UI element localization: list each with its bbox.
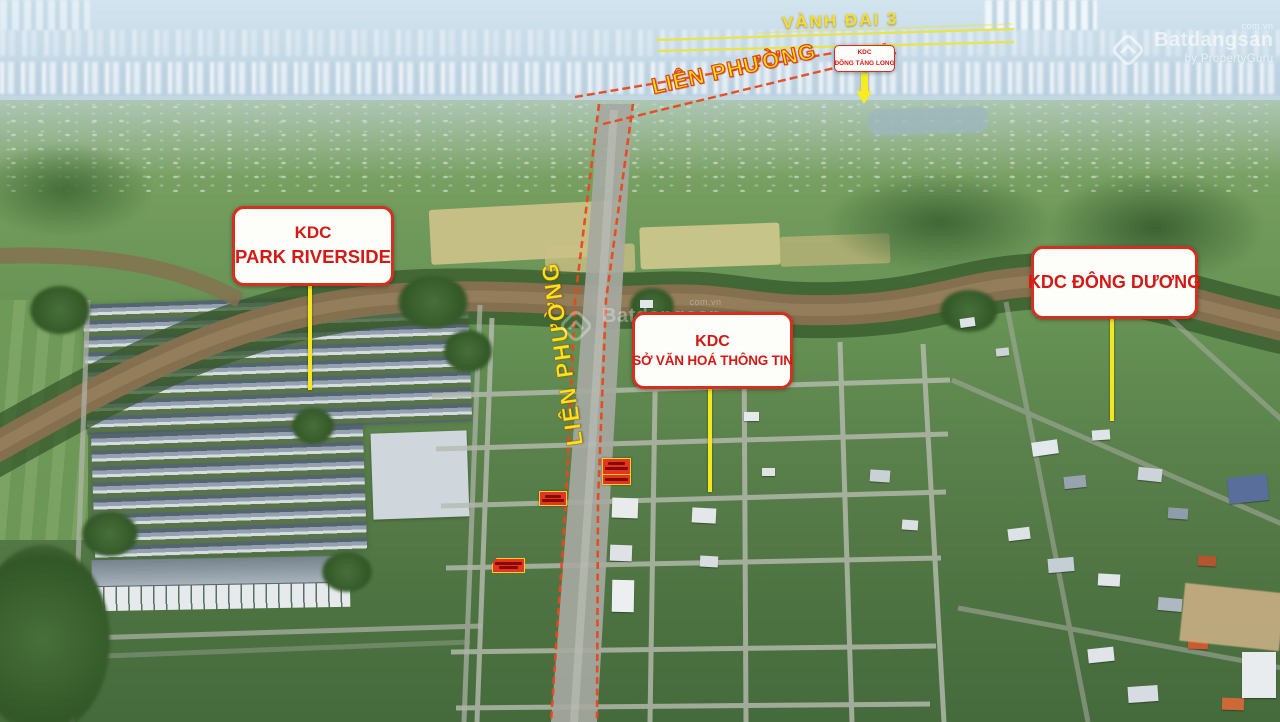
lot-marker-textline	[605, 467, 628, 470]
batdangsan-logo-icon	[556, 306, 596, 346]
callout-line1: KDC	[857, 48, 871, 58]
decor-building	[902, 519, 919, 530]
lot-marker-textline	[495, 562, 522, 565]
decor-house	[1157, 597, 1182, 612]
decor-house	[1063, 475, 1086, 489]
callout-line2: SỞ VĂN HOÁ THÔNG TIN	[632, 352, 793, 370]
lot-marker	[602, 458, 631, 485]
decor-tree-cluster	[82, 512, 138, 556]
callout-line1: KDC ĐÔNG DƯƠNG	[1028, 270, 1201, 294]
decor-building	[744, 412, 759, 421]
decor-house	[1098, 573, 1121, 586]
decor-tree-cluster	[398, 276, 468, 328]
lot-marker	[539, 491, 567, 506]
decor-building	[610, 545, 633, 562]
lot-marker-textline	[608, 462, 624, 465]
decor-house	[1127, 685, 1158, 703]
decor-dirt-lot	[1179, 583, 1280, 651]
lot-marker-textline	[542, 499, 564, 502]
decor-house	[1168, 507, 1189, 519]
decor-house	[1137, 467, 1162, 482]
lot-marker	[492, 558, 525, 573]
lot-marker-divider	[603, 474, 630, 475]
pointer-arrow-shaft	[861, 73, 868, 93]
lot-marker-textline	[545, 495, 560, 498]
right-side-roads	[952, 300, 1280, 722]
decor-building	[612, 580, 635, 612]
decor-house	[996, 347, 1010, 356]
watermark-top-right: com.vn Batdangsan by PropertyGuru	[1108, 30, 1273, 70]
watermark-text: com.vn Batdangsan by PropertyGuru	[1154, 30, 1273, 65]
batdangsan-logo-icon	[1108, 30, 1148, 70]
watermark-tld: com.vn	[1241, 21, 1273, 31]
decor-house	[1087, 647, 1114, 664]
pointer-line-park-riverside	[308, 282, 312, 390]
watermark-tld: com.vn	[689, 297, 721, 307]
callout-line2: ĐÔNG TĂNG LONG	[834, 59, 894, 69]
decor-house	[1242, 652, 1276, 698]
decor-building	[870, 469, 891, 482]
watermark-byline: by PropertyGuru	[1154, 53, 1273, 65]
callout-line1: KDC	[295, 222, 332, 245]
pointer-line-so-van-hoa	[708, 382, 712, 492]
decor-building	[612, 498, 639, 519]
decor-tree-cluster	[30, 286, 90, 334]
decor-house	[1222, 698, 1244, 711]
decor-house	[1198, 556, 1216, 567]
callout-dong-duong: KDC ĐÔNG DƯƠNG	[1031, 246, 1198, 319]
annotated-aerial-map: com.vn Batdangsan by PropertyGuru VÀNH Đ…	[0, 0, 1280, 722]
lot-marker-textline	[499, 566, 518, 569]
watermark-brand: Batdangsan	[1154, 30, 1273, 50]
callout-so-van-hoa-thong-tin: KDC SỞ VĂN HOÁ THÔNG TIN	[632, 312, 793, 389]
decor-tree-cluster	[444, 330, 492, 372]
pointer-line-dong-duong	[1110, 313, 1114, 421]
decor-house	[1092, 429, 1111, 440]
decor-house	[1047, 557, 1074, 573]
callout-line2: PARK RIVERSIDE	[235, 245, 391, 270]
callout-line1: KDC	[695, 331, 730, 353]
decor-tree-cluster	[292, 408, 334, 444]
ring-road-label: VÀNH ĐAI 3	[782, 9, 899, 33]
decor-building	[692, 507, 717, 523]
decor-building	[762, 468, 775, 476]
callout-dong-tang-long: KDC ĐÔNG TĂNG LONG	[834, 45, 895, 72]
callout-park-riverside: KDC PARK RIVERSIDE	[232, 206, 394, 286]
pointer-arrow-head	[856, 91, 872, 104]
decor-house	[1227, 474, 1269, 504]
lot-marker-textline	[605, 478, 628, 481]
decor-tree-cluster	[322, 552, 372, 592]
river-branch	[0, 255, 240, 300]
decor-building	[700, 556, 719, 568]
